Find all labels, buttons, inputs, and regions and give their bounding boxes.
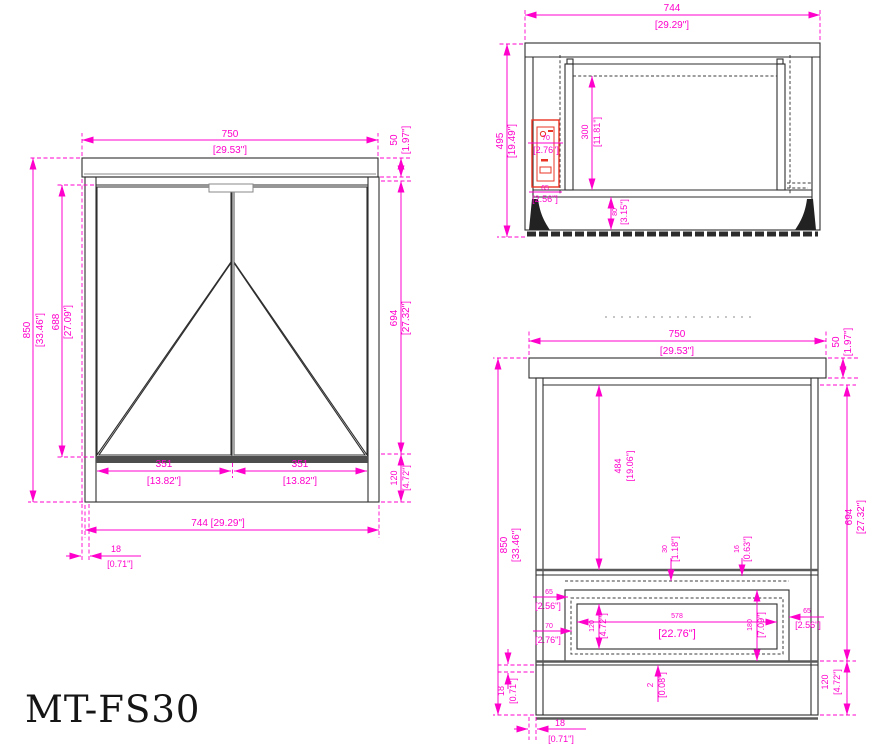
dim-section-base-height-in: [3.15"] bbox=[619, 199, 629, 225]
dim-back-cutout-height-in: [4.72"] bbox=[598, 613, 608, 639]
dim-back-rail-thickness-in: [0.71"] bbox=[508, 678, 518, 704]
dim-back-cutout-width-in: [22.76"] bbox=[658, 628, 696, 640]
dim-back-panel-height-in: [19.06"] bbox=[625, 451, 635, 482]
dim-front-base-height-in: [4.72"] bbox=[401, 465, 411, 491]
dim-back-right-offset-mm: 65 bbox=[803, 608, 811, 615]
dim-outlet-height-mm: 70 bbox=[542, 135, 550, 142]
dim-front-left-door-width-in: [13.82"] bbox=[147, 476, 181, 487]
section-body bbox=[525, 43, 820, 230]
dim-section-base-height-mm: 80 bbox=[612, 208, 619, 216]
front-view: 750 [29.53"] 50 [1.97"] 850 [33.46"] 688… bbox=[22, 125, 412, 569]
dim-front-overall-height-mm: 850 bbox=[22, 321, 33, 338]
dim-front-door-height-mm: 688 bbox=[51, 313, 62, 330]
dim-back-overall-height-mm: 850 bbox=[499, 536, 510, 553]
dim-outlet-offset-in: [2.56"] bbox=[532, 194, 558, 204]
dim-back-overall-height-in: [33.46"] bbox=[511, 528, 522, 562]
back-view: 750 [29.53"] 50 [1.97"] 850 [33.46"] 484… bbox=[493, 317, 867, 744]
dim-front-top-width-in: [29.53"] bbox=[213, 145, 247, 156]
insert-left-column bbox=[565, 64, 573, 190]
dim-section-height-in: [19.49"] bbox=[507, 124, 518, 158]
dim-outlet-offset-mm: 65 bbox=[541, 185, 549, 192]
technical-drawing: 750 [29.53"] 50 [1.97"] 850 [33.46"] 688… bbox=[0, 0, 874, 749]
dim-back-opening-height-in: [7.09"] bbox=[756, 612, 766, 638]
section-view: 744 [29.29"] 495 [19.49"] 300 [11.81"] 7… bbox=[495, 3, 820, 237]
dim-back-panel-height-mm: 484 bbox=[613, 458, 623, 473]
dim-front-left-door-width-mm: 351 bbox=[156, 459, 173, 470]
dim-front-top-thickness-in: [1.97"] bbox=[401, 125, 412, 154]
front-structure-linework bbox=[82, 158, 379, 502]
dim-back-bottom-offset-mm: 18 bbox=[555, 718, 565, 728]
dim-front-side-height-in: [27.32"] bbox=[401, 301, 412, 335]
dim-back-side-height-mm: 694 bbox=[844, 508, 855, 525]
dim-back-left-offset-top-in: [2.56"] bbox=[535, 601, 561, 611]
dim-back-base-height-mm: 120 bbox=[820, 674, 830, 689]
dim-outlet-height-in: [2.76"] bbox=[533, 145, 559, 155]
dim-back-top-thickness-in: [1.97"] bbox=[843, 327, 854, 356]
dim-section-width-in: [29.29"] bbox=[655, 20, 689, 31]
dim-back-rail-offset-mm: 30 bbox=[662, 545, 669, 553]
dim-back-top-width-in: [29.53"] bbox=[660, 346, 694, 357]
dim-back-lip-offset-mm: 16 bbox=[734, 545, 741, 553]
left-door-hatch-lower bbox=[99, 263, 231, 455]
dim-back-left-offset-top-mm: 65 bbox=[545, 589, 553, 596]
dim-back-left-offset-bottom-in: [2.76"] bbox=[535, 635, 561, 645]
dim-front-top-width-mm: 750 bbox=[222, 129, 239, 140]
dim-back-left-offset-bottom-mm: 70 bbox=[545, 623, 553, 630]
model-number-label: MT-FS30 bbox=[25, 688, 200, 731]
dim-front-overall-height-in: [33.46"] bbox=[35, 313, 46, 347]
dim-insert-height-in: [11.81"] bbox=[592, 117, 602, 147]
dim-back-top-width-mm: 750 bbox=[669, 329, 686, 340]
section-structure-linework bbox=[525, 43, 820, 234]
dim-back-bottom-offset-in: [0.71"] bbox=[548, 734, 574, 744]
dim-back-right-offset-in: [2.56"] bbox=[795, 620, 821, 630]
dim-back-cutout-height-mm: 120 bbox=[589, 620, 596, 632]
dim-insert-height-mm: 300 bbox=[580, 124, 590, 139]
dim-section-width-mm: 744 bbox=[664, 3, 681, 14]
door-handle-recess bbox=[209, 184, 253, 192]
left-door-hatch-upper bbox=[97, 187, 231, 455]
dim-front-side-height-mm: 694 bbox=[389, 309, 400, 326]
dim-back-top-thickness-mm: 50 bbox=[831, 336, 842, 348]
dim-back-gap-in: [0.08"] bbox=[657, 672, 667, 698]
dim-section-height-mm: 495 bbox=[495, 132, 506, 149]
outlet-switch-icon bbox=[540, 167, 551, 173]
dim-back-rail-offset-in: [1.18"] bbox=[670, 536, 680, 562]
dim-front-door-height-in: [27.09"] bbox=[63, 305, 74, 339]
dim-front-right-door-width-mm: 351 bbox=[292, 459, 309, 470]
dim-front-base-height-mm: 120 bbox=[389, 470, 399, 485]
right-foot bbox=[795, 199, 816, 230]
dim-front-panel-thickness-mm: 18 bbox=[111, 544, 121, 554]
dim-back-lip-offset-in: [0.63"] bbox=[742, 536, 752, 562]
right-door-hatch-lower bbox=[234, 263, 365, 455]
dim-front-top-thickness-mm: 50 bbox=[389, 134, 400, 146]
dim-back-base-height-in: [4.72"] bbox=[832, 669, 842, 695]
insert-right-column bbox=[777, 64, 785, 190]
dim-back-cutout-width-mm: 578 bbox=[671, 613, 683, 620]
dim-front-body-width: 744 [29.29"] bbox=[191, 518, 245, 529]
dim-back-side-height-in: [27.32"] bbox=[856, 500, 867, 534]
dim-back-gap-mm: 2 bbox=[646, 682, 655, 687]
dim-back-rail-thickness-mm: 18 bbox=[496, 686, 506, 696]
dim-back-opening-height-mm: 180 bbox=[747, 619, 754, 631]
dim-front-right-door-width-in: [13.82"] bbox=[283, 476, 317, 487]
dim-front-panel-thickness-in: [0.71"] bbox=[107, 559, 133, 569]
back-top-panel bbox=[529, 358, 826, 378]
right-door-hatch-upper bbox=[234, 187, 367, 455]
under-door-band bbox=[96, 456, 368, 463]
